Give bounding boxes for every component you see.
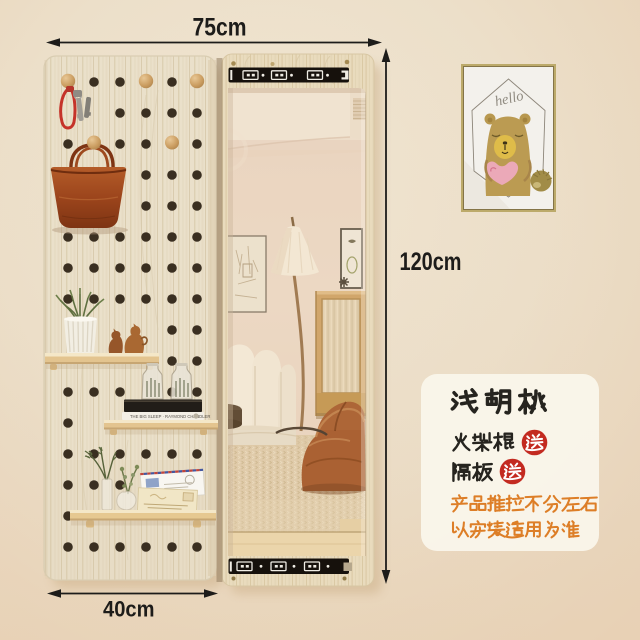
svg-text:120cm: 120cm xyxy=(400,248,462,276)
svg-text:40cm: 40cm xyxy=(103,597,155,622)
svg-text:75cm: 75cm xyxy=(193,14,247,42)
